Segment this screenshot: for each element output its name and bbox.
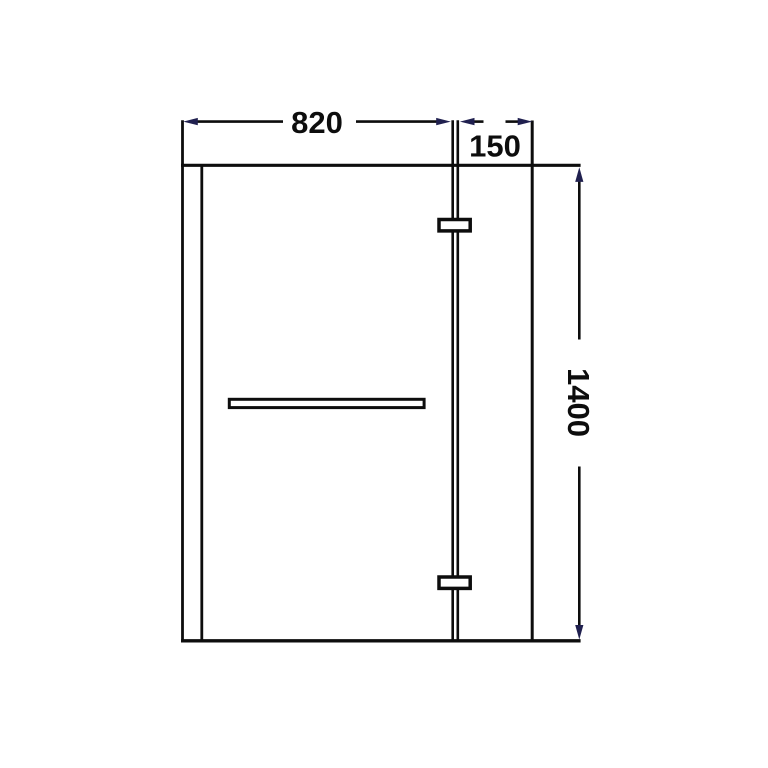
svg-text:820: 820: [291, 105, 343, 140]
svg-text:1400: 1400: [561, 368, 596, 437]
svg-text:150: 150: [469, 129, 521, 164]
